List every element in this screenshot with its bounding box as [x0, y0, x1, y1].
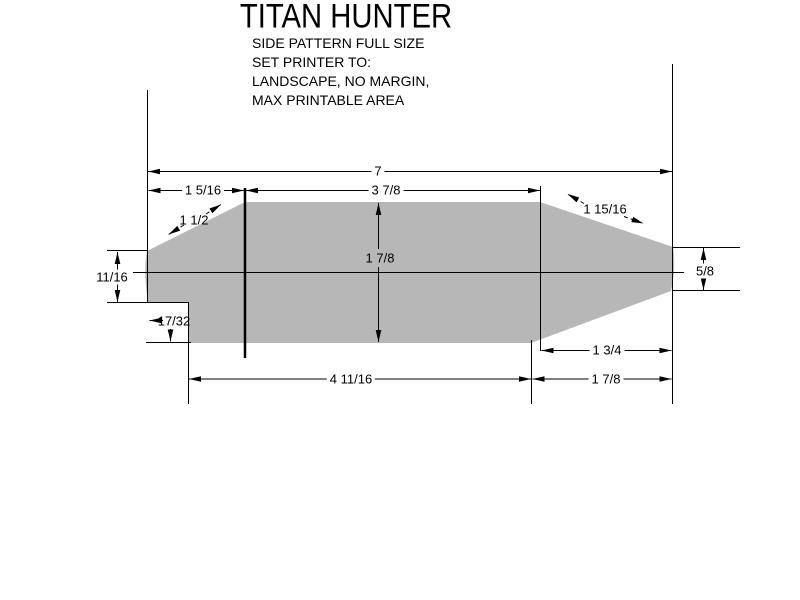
- dim-label-tail-slope: 1 15/16: [583, 202, 626, 217]
- dim-label-tail-height: 5/8: [693, 264, 717, 279]
- dim-label-tail-slope-run: 1 3/4: [590, 343, 625, 358]
- dim-label-body-height: 1 7/8: [366, 251, 395, 266]
- dim-label-tail-section: 1 7/8: [589, 372, 624, 387]
- pattern-drawing: [0, 0, 800, 600]
- dim-label-nose-slope: 1 1/2: [180, 213, 209, 228]
- dim-label-overall-length: 7: [371, 164, 384, 179]
- dim-label-body-bottom: 4 11/16: [327, 372, 375, 387]
- tail-slope-arrow-lower: [624, 217, 644, 224]
- dim-label-top-flat: 3 7/8: [369, 183, 404, 198]
- page: { "title": "TITAN HUNTER", "subtitle_lin…: [0, 0, 800, 600]
- dim-label-nose-height: 11/16: [93, 270, 131, 285]
- tail-slope-arrow-upper: [568, 194, 585, 204]
- dim-label-nose-section: 1 5/16: [182, 183, 224, 198]
- dim-label-notch-height: 17/32: [158, 314, 191, 329]
